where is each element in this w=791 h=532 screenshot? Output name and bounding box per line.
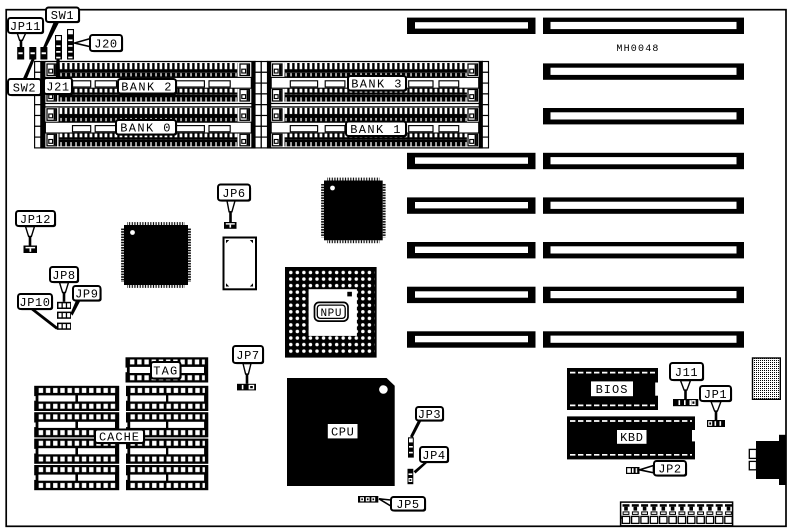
- svg-text:J21: J21: [46, 80, 69, 94]
- svg-text:SW1: SW1: [51, 9, 74, 23]
- svg-text:JP1: JP1: [704, 388, 727, 402]
- svg-text:JP4: JP4: [422, 449, 445, 463]
- svg-text:BANK 3: BANK 3: [351, 78, 403, 92]
- svg-text:MH0048: MH0048: [616, 44, 659, 55]
- svg-text:JP11: JP11: [10, 20, 41, 34]
- svg-text:JP12: JP12: [20, 213, 51, 227]
- svg-text:BANK 2: BANK 2: [121, 81, 173, 95]
- svg-text:JP7: JP7: [236, 349, 259, 363]
- svg-text:JP2: JP2: [658, 463, 681, 477]
- svg-text:NPU: NPU: [320, 308, 342, 320]
- svg-text:CPU: CPU: [331, 425, 354, 439]
- svg-text:BANK 1: BANK 1: [350, 123, 402, 137]
- svg-text:BANK 0: BANK 0: [120, 122, 172, 136]
- svg-text:JP6: JP6: [222, 187, 245, 201]
- svg-text:J20: J20: [94, 37, 117, 51]
- svg-text:CACHE: CACHE: [99, 431, 140, 445]
- svg-text:JP9: JP9: [75, 288, 98, 302]
- svg-text:BIOS: BIOS: [596, 383, 629, 397]
- svg-text:JP5: JP5: [396, 498, 419, 512]
- svg-text:JP3: JP3: [418, 408, 441, 422]
- svg-text:KBD: KBD: [620, 431, 643, 445]
- svg-text:SW2: SW2: [13, 81, 36, 95]
- svg-text:JP10: JP10: [19, 296, 50, 310]
- svg-text:J11: J11: [675, 366, 698, 380]
- svg-text:JP8: JP8: [52, 269, 75, 283]
- svg-text:TAG: TAG: [153, 365, 178, 379]
